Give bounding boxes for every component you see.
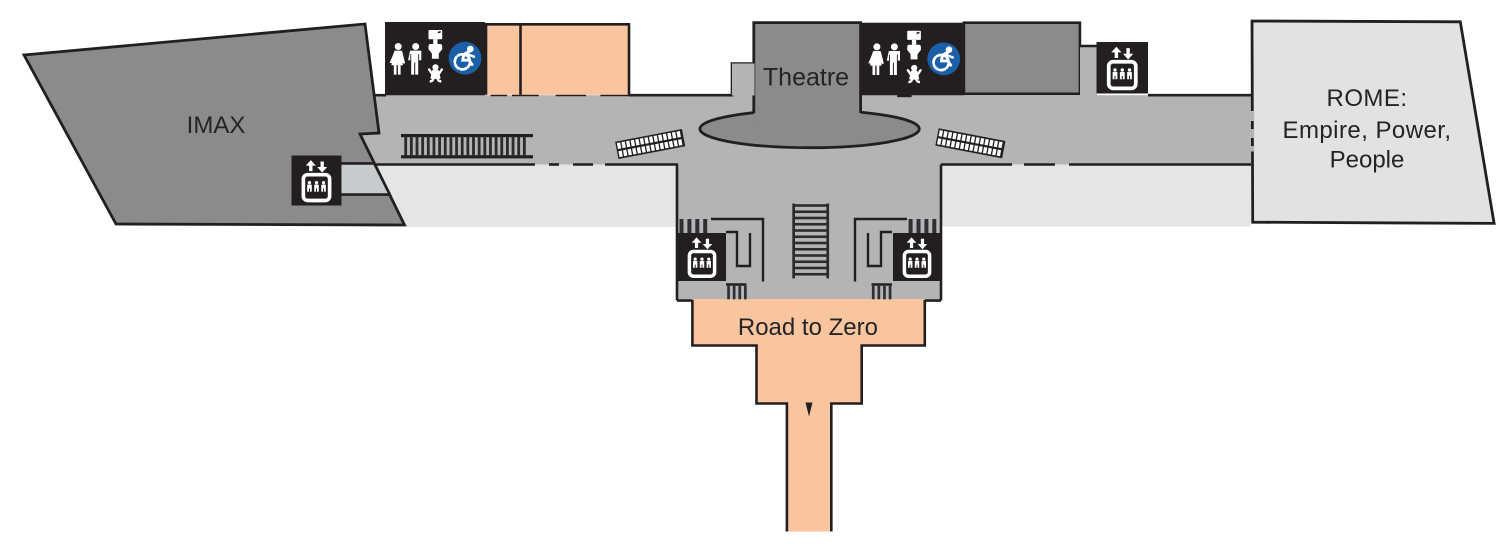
svg-text:Road to Zero: Road to Zero — [738, 314, 878, 341]
svg-text:Theatre: Theatre — [763, 64, 849, 92]
svg-text:Empire, Power,: Empire, Power, — [1282, 117, 1451, 144]
svg-text:People: People — [1330, 146, 1405, 173]
svg-text:ROME:: ROME: — [1327, 85, 1408, 112]
svg-text:IMAX: IMAX — [187, 112, 246, 139]
